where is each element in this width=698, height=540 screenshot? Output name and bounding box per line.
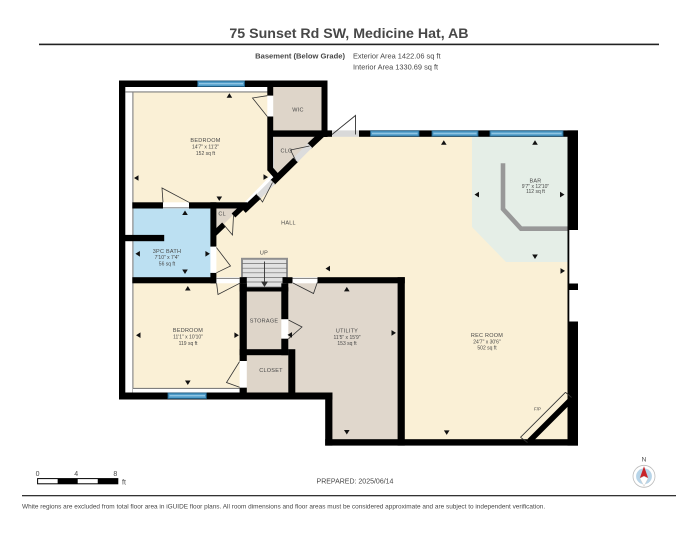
svg-text:White regions are excluded fro: White regions are excluded from total fl… [22, 504, 545, 511]
svg-text:4: 4 [74, 471, 78, 478]
svg-text:0: 0 [36, 471, 40, 478]
svg-text:502 sq ft: 502 sq ft [477, 346, 497, 352]
svg-text:BEDROOM: BEDROOM [190, 138, 220, 144]
svg-text:Exterior Area 1422.06 sq ft: Exterior Area 1422.06 sq ft [353, 52, 441, 61]
svg-text:Interior Area 1330.69 sq ft: Interior Area 1330.69 sq ft [353, 63, 438, 72]
svg-text:56 sq ft: 56 sq ft [159, 262, 176, 268]
svg-text:14'7" x 11'2": 14'7" x 11'2" [192, 145, 219, 151]
svg-text:11'1" x 10'10": 11'1" x 10'10" [173, 335, 203, 341]
svg-text:153 sq ft: 153 sq ft [337, 341, 357, 347]
svg-text:Basement (Below Grade): Basement (Below Grade) [255, 52, 345, 61]
svg-text:HALL: HALL [281, 220, 296, 226]
svg-text:ft: ft [122, 480, 126, 487]
svg-text:UP: UP [260, 251, 268, 257]
svg-text:3PC BATH: 3PC BATH [153, 249, 182, 255]
svg-text:24'7" x 30'6": 24'7" x 30'6" [473, 339, 501, 345]
svg-text:119 sq ft: 119 sq ft [179, 341, 198, 347]
svg-text:CLOSET: CLOSET [259, 368, 283, 374]
svg-text:75 Sunset Rd SW, Medicine Hat,: 75 Sunset Rd SW, Medicine Hat, AB [229, 26, 468, 42]
svg-text:7'10" x 7'4": 7'10" x 7'4" [155, 255, 180, 261]
svg-text:STORAGE: STORAGE [250, 318, 279, 324]
svg-text:F/P: F/P [534, 406, 541, 411]
svg-text:CLO: CLO [280, 149, 293, 155]
svg-text:UTILITY: UTILITY [336, 329, 358, 335]
svg-text:152 sq ft: 152 sq ft [196, 151, 216, 157]
svg-text:8: 8 [113, 471, 117, 478]
svg-text:PREPARED: 2025/06/14: PREPARED: 2025/06/14 [317, 479, 394, 486]
svg-text:REC ROOM: REC ROOM [471, 333, 503, 339]
svg-text:WIC: WIC [292, 108, 303, 114]
svg-text:N: N [642, 457, 647, 464]
svg-text:BEDROOM: BEDROOM [173, 328, 203, 334]
svg-text:CL: CL [218, 212, 226, 218]
svg-text:112 sq ft: 112 sq ft [526, 189, 545, 195]
